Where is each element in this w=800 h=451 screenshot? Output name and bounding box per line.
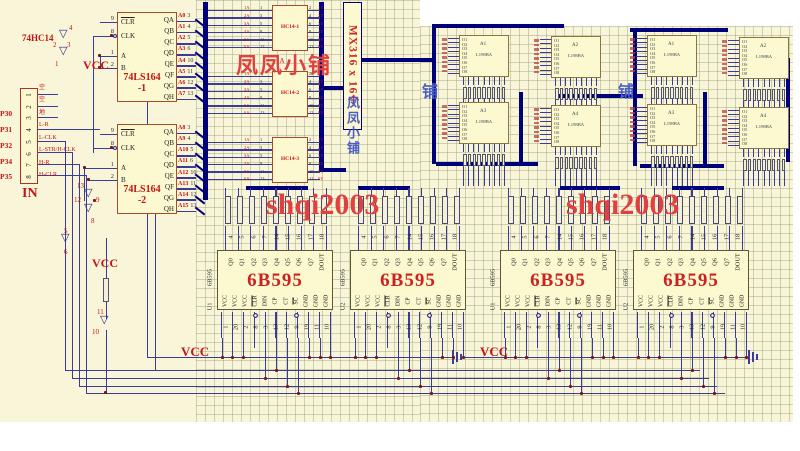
net-label: L-R [39, 122, 119, 128]
module-designator: A2 [760, 44, 766, 49]
resistor [737, 196, 743, 224]
watermark-pu-left: 铺 [422, 78, 438, 102]
pin-number: 11 [97, 308, 104, 316]
connector-in: 12345678 [20, 88, 38, 184]
inverter-ref-74hc14: 74HC14 [22, 33, 54, 43]
bus-segment [362, 58, 436, 62]
pin-number: 10 [732, 323, 752, 332]
resistor [454, 196, 460, 224]
resistor [508, 196, 514, 224]
output-net: A14 [178, 24, 208, 32]
part-name-vertical: 6B595 [623, 256, 630, 300]
junction-dot [713, 392, 716, 395]
junction-dot [702, 385, 705, 388]
pin-label-b: B [121, 176, 126, 184]
pin-number: 1 [55, 60, 59, 68]
junction-dot [430, 392, 433, 395]
pin-number: 8 [91, 217, 95, 225]
output-net: A511 [178, 69, 208, 77]
module-designator: A3 [480, 109, 486, 114]
pin-number: 10 [599, 323, 619, 332]
resistor [225, 196, 231, 224]
bus-segment [519, 92, 523, 166]
pin-number: 18 [312, 232, 332, 243]
designator: U2 [623, 299, 630, 315]
junction-dot [647, 356, 650, 359]
junction-dot [680, 377, 683, 380]
resistor [520, 196, 526, 224]
pin-label-a: A [121, 52, 126, 60]
output-label: QA [144, 129, 174, 136]
inverter-icon: ▽ [59, 29, 67, 40]
watermark-fengfeng: 凤凤小铺 [236, 48, 332, 80]
part-designator: 74LS164-1 [114, 72, 170, 94]
module-part: L198BA [568, 122, 584, 127]
junction-dot [93, 199, 96, 202]
pin-label-a: A [121, 164, 126, 172]
wire [752, 352, 754, 362]
wire [756, 354, 758, 360]
output-net: A713 [178, 91, 208, 99]
resistor [418, 196, 424, 224]
output-label: QA [144, 17, 174, 24]
junction-dot [364, 356, 367, 359]
inverter-icon: ▽ [84, 203, 92, 214]
pin-number: 1 [102, 49, 114, 56]
watermark-pu-right: 铺 [618, 78, 634, 102]
pin-label-clk: CLK [121, 32, 135, 40]
output-label: QB [144, 140, 174, 147]
junction-dot [297, 392, 300, 395]
module-designator: A2 [572, 43, 578, 48]
pin-label: GND [598, 297, 620, 306]
pin-number: 5 [64, 227, 68, 235]
output-net: A612 [178, 80, 208, 88]
resistor [394, 196, 400, 224]
module-designator: A1 [480, 42, 486, 47]
junction-dot [104, 391, 107, 394]
part-designator: HC14-3 [272, 156, 308, 162]
junction-dot [231, 356, 234, 359]
output-label: QE [144, 173, 174, 180]
junction-dot [569, 385, 572, 388]
resistor [713, 196, 719, 224]
resistor [249, 196, 255, 224]
designator: U2 [340, 299, 347, 315]
output-net: A94 [178, 136, 208, 144]
pin-label-b: B [121, 64, 126, 72]
module-designator: A3 [668, 111, 674, 116]
part-label: 6B595 [500, 270, 616, 292]
junction-dot [242, 356, 245, 359]
part-designator: HC14-1 [272, 24, 308, 30]
mx316-label: MX316 x 16个 [345, 25, 361, 107]
hex-inverter-hc14-3: HC14-3 1A2A3A4A5A6A 13591113 24681012 1Y… [208, 137, 324, 187]
port-label: P34 [0, 158, 20, 166]
connector-net-labels: 空空地L-RL-CLKL-STR/H-CLKH-RH-CLR [39, 85, 119, 178]
bus-segment [630, 28, 728, 32]
junction-dot [724, 356, 727, 359]
wire [155, 208, 156, 371]
junction-dot [329, 356, 332, 359]
watermark-shqi2003-right: shqi2003 [566, 188, 679, 222]
junction-dot [745, 356, 748, 359]
resistor [382, 196, 388, 224]
pin-label: GND [731, 297, 753, 306]
junction-dot [525, 356, 528, 359]
pin-number: 12 [74, 196, 81, 204]
pin-number: 4 [69, 24, 73, 32]
pin-label: DOUT [445, 257, 465, 268]
resistor [725, 196, 731, 224]
module-part: L198BA [756, 124, 772, 129]
output-net: A83 [178, 125, 208, 133]
pin-number: 6 [64, 248, 68, 256]
junction-dot [319, 356, 322, 359]
pin-number: 13 [77, 182, 84, 190]
junction-dot [580, 392, 583, 395]
junction-dot [375, 356, 378, 359]
resistor [103, 278, 109, 302]
part-label: 6B595 [350, 270, 466, 292]
net-label: H-R [39, 160, 119, 166]
module-part: L198BA [756, 54, 772, 59]
inverter-icon: ▽ [84, 188, 92, 199]
output-label: QH [144, 206, 174, 213]
pin-number: 18 [595, 232, 615, 243]
wire [72, 152, 73, 379]
pin-number: 9 [102, 15, 114, 22]
module-designator: A4 [572, 112, 578, 117]
output-label: QC [144, 39, 174, 46]
designator: U1 [490, 299, 497, 315]
junction-dot [408, 369, 411, 372]
page-margin-top [420, 0, 800, 26]
junction-dot [452, 356, 455, 359]
resistor [689, 196, 695, 224]
pin-label-clk: CLK [121, 144, 135, 152]
inverter-icon: ▽ [100, 315, 108, 326]
junction-dot [98, 54, 101, 57]
pin-label: DOUT [312, 257, 332, 268]
net-label: L-CLK [39, 135, 119, 141]
junction-dot [275, 369, 278, 372]
wire [106, 330, 107, 394]
output-net: A1311 [178, 181, 208, 189]
module-part: L198BA [664, 52, 680, 57]
pin-number: 10 [316, 323, 336, 332]
output-net: A410 [178, 58, 208, 66]
output-net: A25 [178, 35, 208, 43]
pin-label: DOUT [595, 257, 615, 268]
net-label: 空 [39, 85, 119, 91]
output-net: A1513 [178, 203, 208, 211]
bus-segment [703, 92, 707, 166]
output-label: QC [144, 151, 174, 158]
pin-number: 18 [728, 232, 748, 243]
pin-number: 18 [445, 232, 465, 243]
part-designator: HC14-2 [272, 90, 308, 96]
part-name-vertical: 6B595 [207, 256, 214, 300]
junction-dot [308, 356, 311, 359]
junction-dot [110, 34, 113, 37]
junction-dot [591, 356, 594, 359]
module-part: L198BA [476, 52, 492, 57]
port-label: P32 [0, 142, 20, 150]
resistor [532, 196, 538, 224]
vcc-label: VCC [83, 58, 109, 73]
output-label: QH [144, 94, 174, 101]
output-label: QB [144, 28, 174, 35]
output-net: A116 [178, 158, 208, 166]
pin-number: 3 [67, 41, 71, 49]
junction-dot [612, 356, 615, 359]
module-designator: A1 [668, 42, 674, 47]
pin-number: 10 [449, 323, 469, 332]
port-label: P31 [0, 126, 20, 134]
junction-dot [397, 377, 400, 380]
net-label: 地 [39, 110, 119, 116]
part-designator: 74LS164-2 [114, 184, 170, 206]
net-label: H-CLR [39, 172, 119, 178]
output-net: A1210 [178, 170, 208, 178]
junction-dot [354, 356, 357, 359]
bus-segment [432, 24, 564, 28]
part-name-vertical: 6B595 [340, 256, 347, 300]
junction-dot [558, 369, 561, 372]
junction-dot [637, 356, 640, 359]
resistor [406, 196, 412, 224]
module-part: L198BA [664, 121, 680, 126]
junction-dot [514, 356, 517, 359]
junction-dot [221, 356, 224, 359]
junction-dot [602, 356, 605, 359]
output-net: A36 [178, 46, 208, 54]
pin-label-clr: CLR [121, 18, 135, 26]
junction-dot [462, 356, 465, 359]
pin-label: GND [448, 297, 470, 306]
resistor [701, 196, 707, 224]
resistor [544, 196, 550, 224]
schematic-image: 12345678 空空地L-RL-CLKL-STR/H-CLKH-RH-CLR … [0, 0, 800, 451]
net-label: 空 [39, 97, 119, 103]
pin-label-clr: CLR [121, 130, 135, 138]
output-label: QD [144, 162, 174, 169]
port-label: P30 [0, 110, 20, 118]
junction-dot [658, 356, 661, 359]
vcc-label-bottom-right: VCC [480, 344, 508, 360]
junction-dot [691, 369, 694, 372]
output-net: A105 [178, 147, 208, 155]
resistor [556, 196, 562, 224]
junction-dot [547, 377, 550, 380]
junction-dot [286, 385, 289, 388]
pin-number: 10 [92, 328, 99, 336]
junction-dot [441, 356, 444, 359]
junction-dot [87, 178, 90, 181]
port-labels: P30P31P32P34P35 [0, 85, 20, 181]
output-label: QD [144, 50, 174, 57]
watermark-shqi2003-left: shqi2003 [266, 188, 379, 222]
part-label: 6B595 [633, 270, 749, 292]
pin-label: GND [315, 297, 337, 306]
module-designator: A4 [760, 114, 766, 119]
module-part: L198BA [568, 53, 584, 58]
port-label: P35 [0, 173, 20, 181]
resistor [442, 196, 448, 224]
junction-dot [735, 356, 738, 359]
module-part: L198BA [476, 119, 492, 124]
output-net: A03 [178, 13, 208, 21]
vcc-label-bottom-left: VCC [181, 344, 209, 360]
pin-label: DOUT [728, 257, 748, 268]
resistor [430, 196, 436, 224]
resistor [237, 196, 243, 224]
connector-designator: IN [22, 186, 38, 202]
vcc-label: VCC [92, 256, 118, 271]
connector-pin-number: 8 [25, 169, 33, 185]
pin-number: 9 [96, 196, 100, 204]
designator: U1 [207, 299, 214, 315]
output-net: A1412 [178, 192, 208, 200]
net-label: L-STR/H-CLK [39, 147, 119, 153]
part-name-vertical: 6B595 [490, 256, 497, 300]
output-label: QE [144, 61, 174, 68]
junction-dot [419, 385, 422, 388]
junction-dot [264, 377, 267, 380]
part-label: 6B595 [217, 270, 333, 292]
watermark-fengfeng-vertical: 凤凤小铺 [344, 96, 362, 196]
